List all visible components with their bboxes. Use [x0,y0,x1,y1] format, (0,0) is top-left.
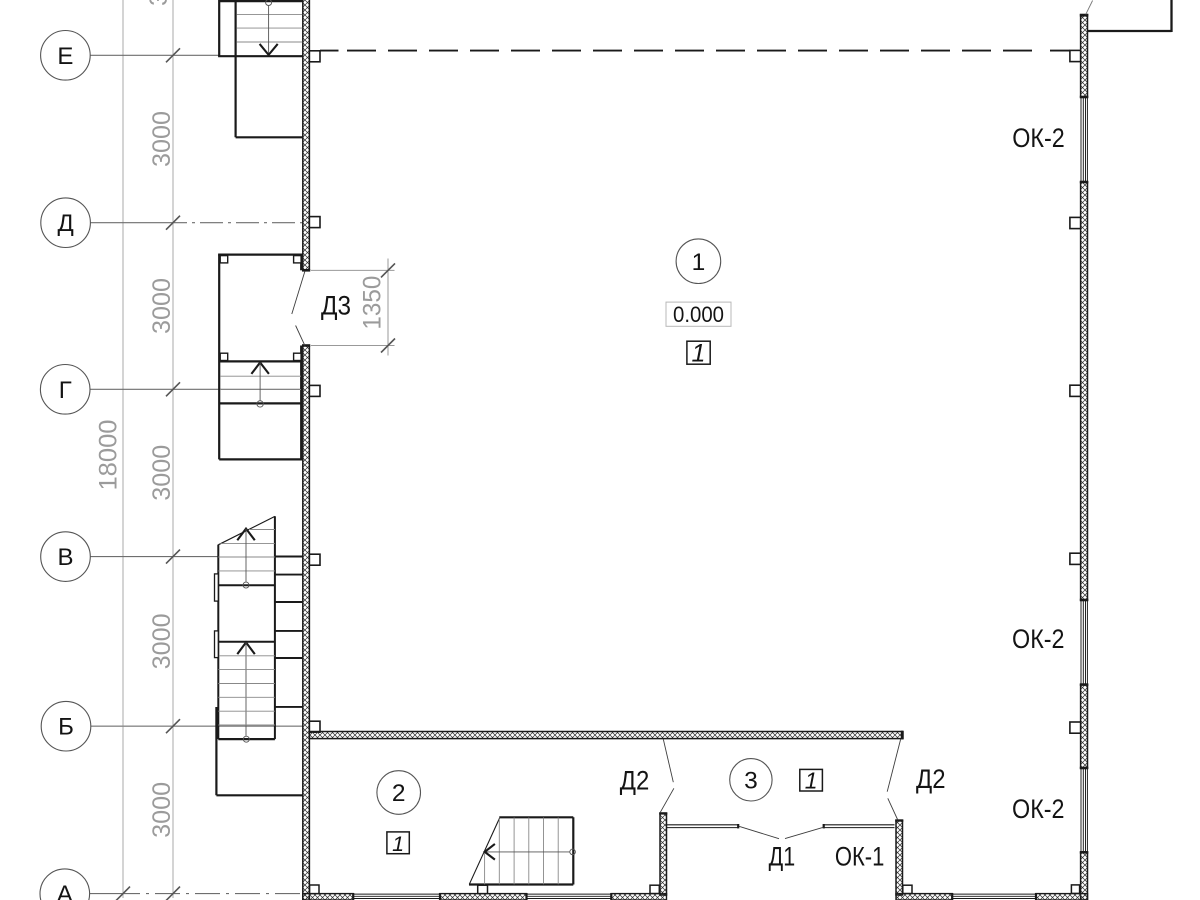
svg-text:Д2: Д2 [620,766,650,796]
svg-text:3000: 3000 [148,782,176,838]
svg-text:3000: 3000 [148,111,176,167]
svg-text:18000: 18000 [95,420,123,491]
svg-text:Д2: Д2 [916,764,946,794]
svg-text:ОК-1: ОК-1 [835,842,885,872]
svg-text:3000: 3000 [145,0,173,6]
svg-text:1: 1 [392,832,404,856]
svg-text:2: 2 [392,780,406,807]
svg-text:0.000: 0.000 [673,302,724,327]
svg-text:1: 1 [692,340,706,368]
svg-text:В: В [57,544,73,571]
svg-text:Г: Г [59,377,72,404]
svg-text:ОК-2: ОК-2 [1012,123,1065,153]
svg-text:3000: 3000 [148,278,176,334]
svg-text:Е: Е [57,43,73,70]
svg-text:Б: Б [58,714,74,741]
svg-text:ОК-2: ОК-2 [1012,624,1065,654]
svg-text:3000: 3000 [148,613,176,669]
svg-text:Д1: Д1 [769,842,796,872]
svg-text:1: 1 [692,249,706,276]
svg-text:3000: 3000 [148,445,176,501]
svg-text:Д: Д [57,210,73,237]
svg-text:ОК-2: ОК-2 [1012,794,1065,824]
svg-text:А: А [57,881,73,900]
svg-text:3: 3 [744,767,758,794]
svg-text:1350: 1350 [359,276,387,330]
svg-text:1: 1 [805,767,818,793]
svg-text:Д3: Д3 [321,291,351,321]
